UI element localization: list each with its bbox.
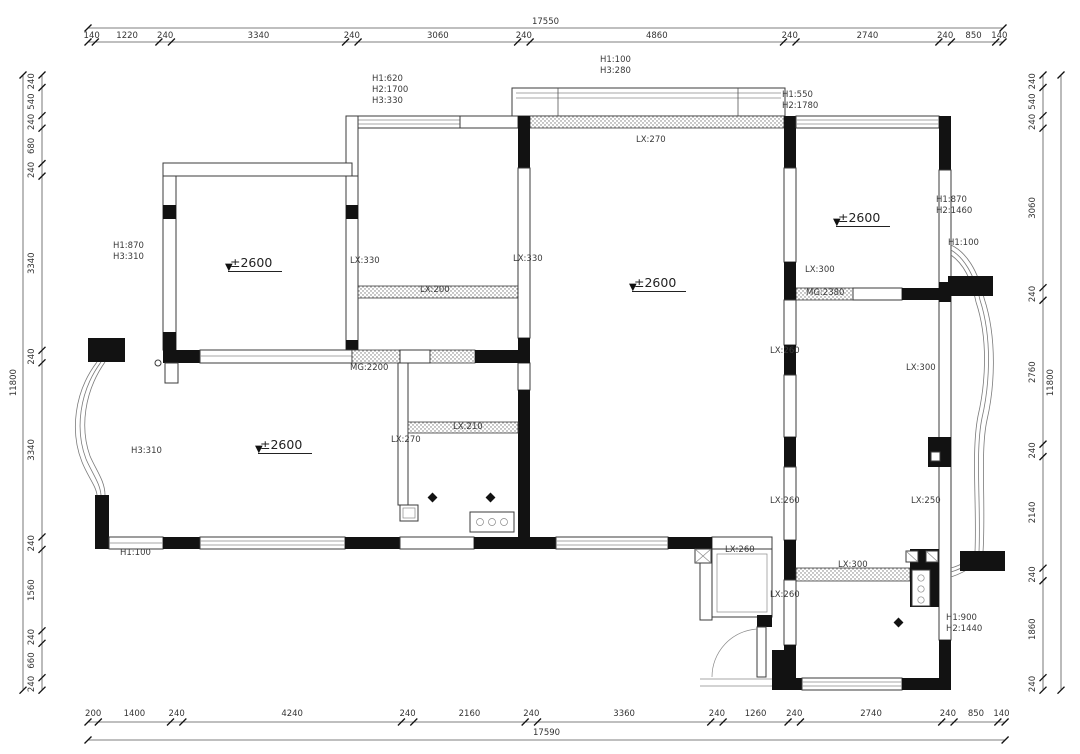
dimension-label: 140: [991, 31, 1007, 41]
dimension-label: 240: [27, 73, 37, 89]
drain-point: [486, 493, 496, 503]
dimension-label: 1560: [27, 579, 37, 601]
entry-door-arc: [712, 629, 757, 677]
dimension-label: 4240: [281, 709, 303, 719]
annotation-label: LX:300: [805, 265, 835, 276]
dimension-label: 240: [27, 629, 37, 645]
level-triangle-icon: ▼: [255, 445, 263, 455]
level-marker: ±2600▼: [836, 207, 890, 227]
dimension-label: 240: [1028, 286, 1038, 302]
dimension-label: 240: [344, 31, 360, 41]
dimension-label: 540: [1028, 93, 1038, 109]
window-bottom-center: [556, 537, 668, 549]
dimension-label: 680: [27, 138, 37, 154]
vestibule: [712, 549, 772, 617]
level-triangle-icon: ▼: [833, 218, 841, 228]
dimension-label: 3340: [248, 31, 270, 41]
upper-left-room-top-wall: [163, 163, 352, 176]
annotation-label: MG:2380: [806, 288, 844, 299]
dimension-label: 140: [84, 31, 100, 41]
level-triangle-icon: ▼: [225, 263, 233, 273]
annotation-label: H1:900 H2:1440: [946, 613, 982, 635]
level-marker: ±2600▼: [632, 272, 686, 292]
annotation-label: MG:2200: [350, 363, 388, 374]
dimension-label: 17590: [533, 728, 560, 738]
dimension-label: 2160: [459, 709, 481, 719]
dimension-label: 3340: [27, 439, 37, 461]
annotation-label: LX:270: [636, 135, 666, 146]
annotation-label: H1:620 H2:1700 H3:330: [372, 74, 408, 107]
annotation-label: H1:100 H3:280: [600, 55, 631, 77]
dimension-label: 1400: [124, 709, 146, 719]
dimension-label: 240: [157, 31, 173, 41]
dimension-label: 3060: [1028, 197, 1038, 219]
annotation-label: H3:310: [131, 446, 162, 457]
dimension-label: 2760: [1028, 361, 1038, 383]
appliance: [912, 570, 930, 606]
level-marker: ±2600▼: [258, 434, 312, 454]
annotation-label: LX:200: [420, 285, 450, 296]
drain-point: [428, 493, 438, 503]
dimension-label: 240: [940, 709, 956, 719]
dimension-label: 240: [1028, 114, 1038, 130]
dimension-label: 240: [27, 348, 37, 364]
dimension-label: 3060: [427, 31, 449, 41]
window-top-left: [358, 116, 460, 128]
dimension-label: 240: [516, 31, 532, 41]
drain-point: [894, 618, 904, 628]
dimension-label: 850: [965, 31, 981, 41]
dimension-label: 240: [1028, 566, 1038, 582]
dimension-label: 240: [1028, 676, 1038, 692]
dimension-label: 240: [523, 709, 539, 719]
annotation-label: H1:870 H3:310: [113, 241, 144, 263]
annotation-label: LX:210: [453, 422, 483, 433]
dimension-label: 3360: [613, 709, 635, 719]
dimension-label: 1860: [1028, 618, 1038, 640]
annotation-label: LX:330: [513, 254, 543, 265]
annotation-label: H1:100: [948, 238, 979, 249]
dimension-label: 240: [27, 162, 37, 178]
annotation-label: LX:330: [350, 256, 380, 267]
dimension-label: 17550: [532, 17, 559, 27]
annotation-label: LX:260: [770, 590, 800, 601]
dimension-label: 2740: [860, 709, 882, 719]
level-marker: ±2600▼: [228, 252, 282, 272]
annotation-label: H1:870 H2:1460: [936, 195, 972, 217]
level-value: ±2600: [258, 437, 312, 454]
window-bottom-right: [802, 678, 902, 690]
annotation-label: LX:300: [838, 560, 868, 571]
annotation-label: LX:260: [770, 496, 800, 507]
dimension-label: 240: [27, 114, 37, 130]
dimension-label: 1260: [745, 709, 767, 719]
annotation-label: LX:300: [906, 363, 936, 374]
window-bottom-left: [200, 537, 345, 549]
beam-lx270: [530, 116, 784, 128]
balcony-window: [512, 88, 785, 116]
dimension-label: 240: [1028, 73, 1038, 89]
dimension-label: 240: [937, 31, 953, 41]
kitchen-wall: [398, 363, 408, 505]
dimension-label: 240: [709, 709, 725, 719]
annotation-label: LX:260: [725, 545, 755, 556]
dimension-label: 850: [968, 709, 984, 719]
dimension-label: 240: [27, 535, 37, 551]
dimension-label: 240: [399, 709, 415, 719]
walls-layer: [88, 88, 951, 690]
level-triangle-icon: ▼: [629, 283, 637, 293]
annotation-label: LX:260: [770, 346, 800, 357]
entry-door-leaf: [757, 627, 766, 677]
annotation-label: LX:250: [911, 496, 941, 507]
dimension-label: 240: [169, 709, 185, 719]
dimension-label: 240: [782, 31, 798, 41]
dimension-label: 660: [27, 652, 37, 668]
dimension-label: 240: [786, 709, 802, 719]
dimension-label: 1220: [116, 31, 138, 41]
dimension-label: 240: [1028, 442, 1038, 458]
dimension-label: 11800: [1046, 369, 1056, 396]
dimension-label: 2140: [1028, 502, 1038, 524]
opening-mg2200: [200, 350, 352, 363]
dimension-label: 3340: [27, 252, 37, 274]
window-top-right: [796, 116, 939, 128]
dimension-label: 2740: [857, 31, 879, 41]
floor-plan-page: 1755014012202403340240306024048602402740…: [0, 0, 1080, 750]
dimension-label: 4860: [646, 31, 668, 41]
annotation-label: H1:100: [120, 548, 151, 559]
dimension-label: 240: [27, 676, 37, 692]
dimension-label: 11800: [9, 369, 19, 396]
annotation-label: H1:550 H2:1780: [782, 90, 818, 112]
dimension-label: 540: [27, 93, 37, 109]
level-value: ±2600: [228, 255, 282, 272]
level-value: ±2600: [836, 210, 890, 227]
dimension-label: 200: [85, 709, 101, 719]
floor-plan-canvas: 1755014012202403340240306024048602402740…: [0, 0, 1080, 750]
dimension-label: 140: [993, 709, 1009, 719]
level-value: ±2600: [632, 275, 686, 292]
annotation-label: LX:270: [391, 435, 421, 446]
